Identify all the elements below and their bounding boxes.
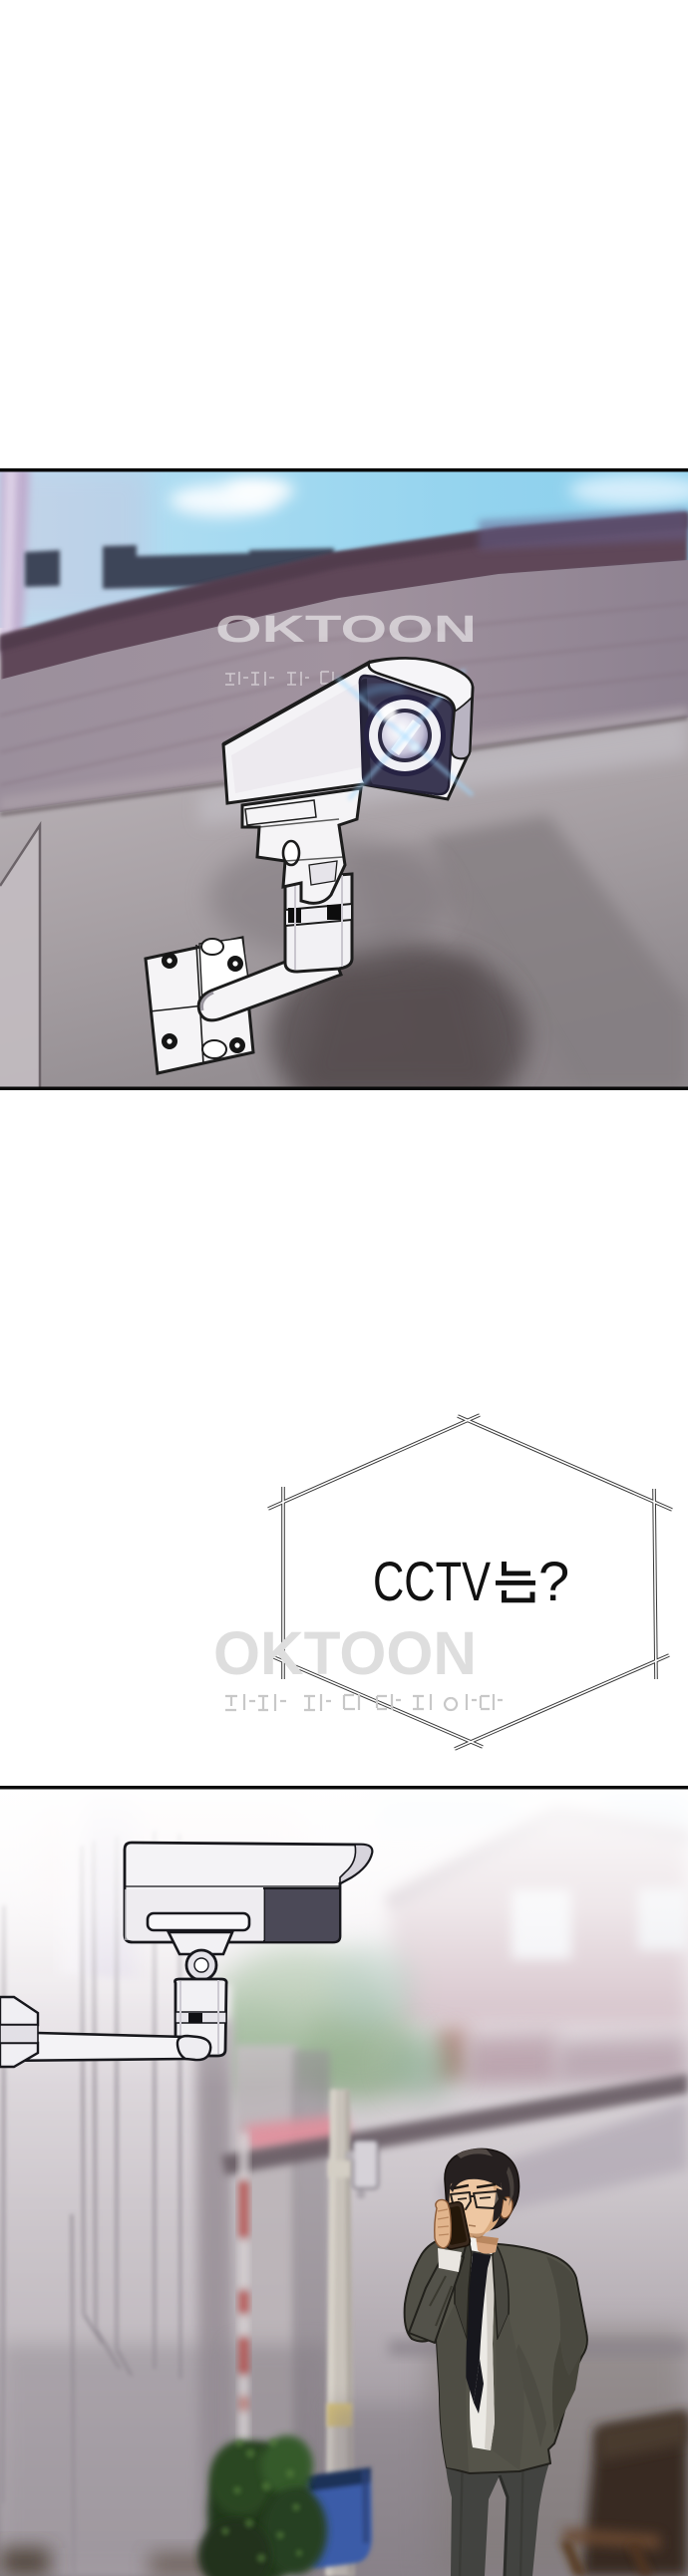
svg-text:?: ? <box>538 1550 569 1612</box>
svg-text:CCTV: CCTV <box>373 1550 491 1612</box>
svg-text:OKTOON: OKTOON <box>213 1619 477 1687</box>
svg-text:OKTOON: OKTOON <box>215 609 477 651</box>
